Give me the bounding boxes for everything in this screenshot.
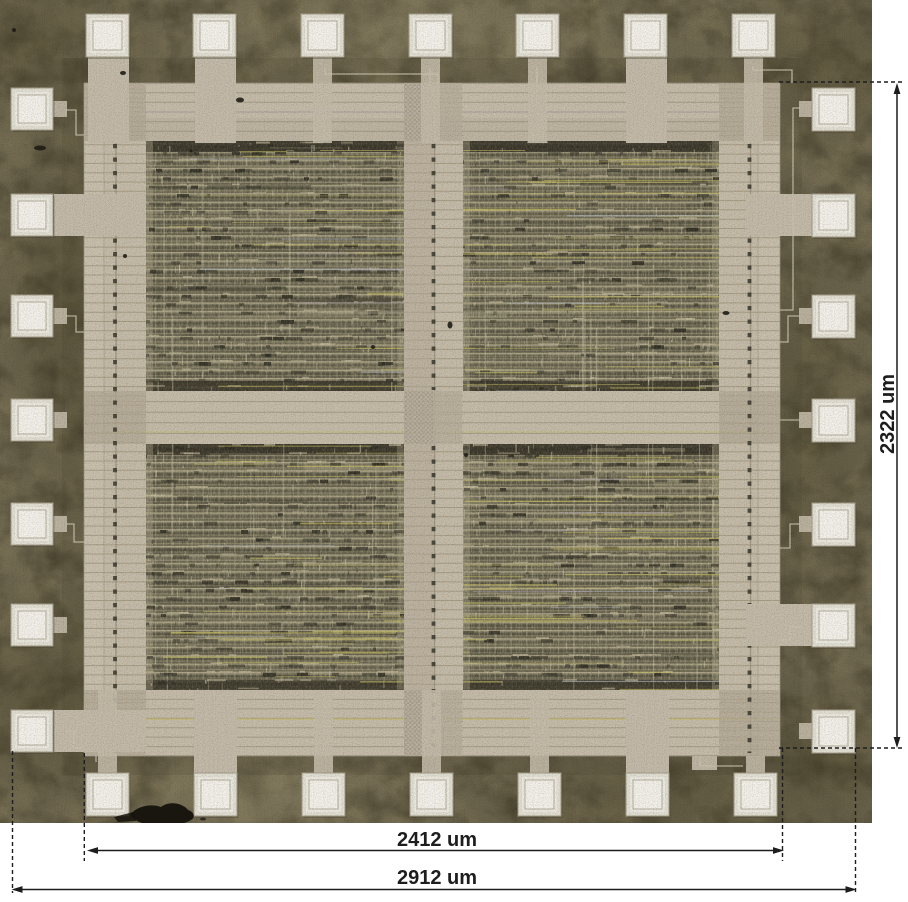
svg-text:2412 um: 2412 um bbox=[397, 829, 477, 851]
svg-text:2322 um: 2322 um bbox=[877, 374, 899, 454]
svg-text:2912 um: 2912 um bbox=[397, 867, 477, 889]
